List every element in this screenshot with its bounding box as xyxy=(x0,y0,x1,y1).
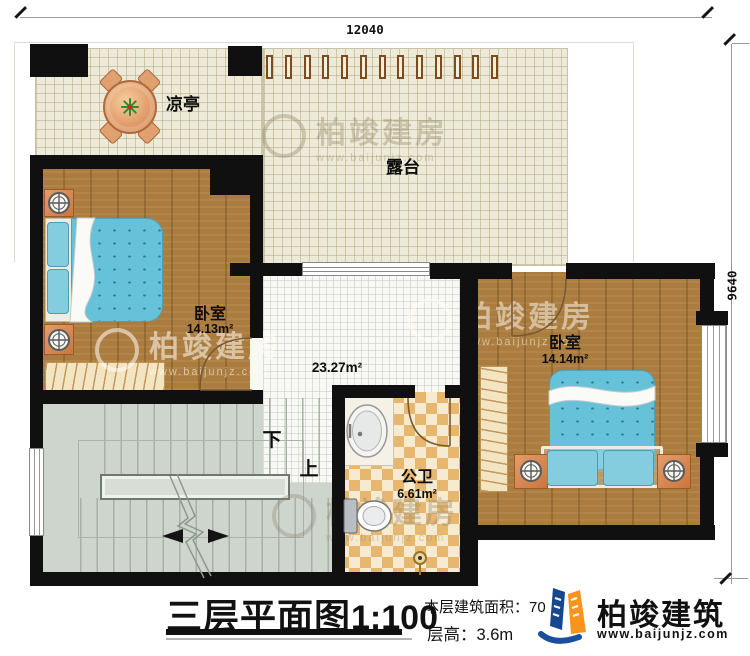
bed-pillow xyxy=(47,269,69,314)
bay-window xyxy=(701,325,727,443)
bed-mattress xyxy=(71,218,163,322)
dimension-stub xyxy=(732,43,749,44)
wall xyxy=(332,385,345,576)
bathroom-label: 公卫 xyxy=(385,469,449,487)
bed-pillow xyxy=(603,450,654,486)
bed-pillow xyxy=(547,450,598,486)
bay-window-pier xyxy=(696,443,728,457)
top-dimension-label: 12040 xyxy=(328,22,402,37)
wall xyxy=(445,385,460,398)
pavilion-label: 凉亭 xyxy=(151,96,215,115)
brand-logo-icon xyxy=(533,580,597,648)
wall xyxy=(460,278,478,572)
wall-pillar xyxy=(228,46,262,76)
nightstand xyxy=(44,324,74,355)
bedroom1-area: 14.13m² xyxy=(168,323,252,337)
wardrobe xyxy=(45,362,165,392)
title-underline xyxy=(166,629,402,635)
top-dimension-line xyxy=(20,17,712,18)
stair-railing xyxy=(100,474,290,500)
wall xyxy=(566,263,715,279)
floor-area-text: 本层建筑面积：70 xyxy=(424,596,546,617)
terrace-railing xyxy=(266,55,498,82)
stairs-down-label: 下 xyxy=(258,431,286,452)
floor-plan-canvas: 12040 9640 柏竣建房www.baijunjz.com xyxy=(0,0,750,656)
hall-area: 23.27m² xyxy=(295,361,379,376)
window xyxy=(29,448,44,536)
sink-counter xyxy=(340,396,394,466)
title-underline-thin xyxy=(166,638,412,640)
wall-pillar xyxy=(30,44,88,77)
bed-pillow xyxy=(47,222,69,267)
window xyxy=(302,262,430,276)
wall-bottom xyxy=(30,572,478,586)
pavilion-table xyxy=(103,80,157,134)
stairs-up-label: 上 xyxy=(295,460,323,481)
right-dimension-label: 9640 xyxy=(725,254,740,318)
bedroom2-area: 14.14m² xyxy=(525,353,605,367)
wall xyxy=(460,525,715,540)
bedroom1-label: 卧室 xyxy=(168,306,252,324)
nightstand xyxy=(514,454,548,489)
floor-height-text: 层高：3.6m xyxy=(427,621,513,645)
brand-website: www.baijunjz.com xyxy=(597,627,729,641)
bay-window-pier xyxy=(696,311,728,325)
wall xyxy=(30,390,263,404)
bedroom2-label: 卧室 xyxy=(525,335,605,353)
dimension-stub xyxy=(714,578,748,579)
wall xyxy=(230,263,302,276)
bathroom-area: 6.61m² xyxy=(385,488,449,502)
hall-floor xyxy=(256,270,462,400)
wardrobe xyxy=(480,366,508,492)
door-opening xyxy=(250,338,263,390)
wall xyxy=(430,263,512,279)
terrace-label: 露台 xyxy=(371,159,435,178)
nightstand xyxy=(657,454,691,489)
nightstand xyxy=(44,189,74,217)
